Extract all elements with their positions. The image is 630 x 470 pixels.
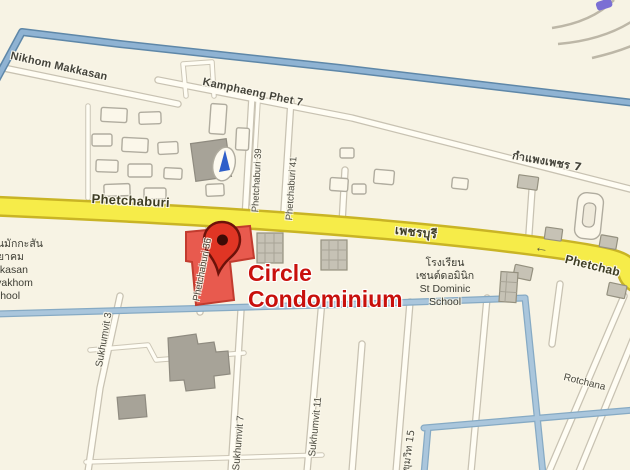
small-building: [117, 395, 147, 419]
place-label-line: โรงเรียนมักกะสัน: [0, 238, 54, 251]
place-label-line: Pittayakhom: [0, 277, 54, 290]
poi-label-line2: Condominium: [248, 286, 403, 312]
place-label-line: เซนต์ดอมินิก: [404, 270, 486, 283]
place-label-line: พิทยาคม: [0, 251, 54, 264]
large-building: [168, 334, 230, 391]
gridded-building: [499, 271, 518, 302]
place-label-line: School: [404, 296, 486, 309]
place-label-line: โรงเรียน: [404, 257, 486, 270]
place-label-st-dominic-school: โรงเรียน เซนต์ดอมินิก St Dominic School: [404, 257, 486, 309]
place-label-makkasan-school: โรงเรียนมักกะสัน พิทยาคม Makkasan Pittay…: [0, 238, 54, 303]
minor-curves: [552, 0, 630, 58]
place-label-line: St Dominic: [404, 283, 486, 296]
place-label-line: School: [0, 290, 54, 303]
poi-label-circle-condominium: Circle Condominium: [248, 260, 403, 312]
place-label-line: Makkasan: [0, 264, 54, 277]
ring-building: [574, 192, 605, 240]
gridded-building: [257, 233, 283, 263]
poi-label-line1: Circle: [248, 260, 403, 286]
map-canvas[interactable]: Nikhom Makkasan Kamphaeng Phet 7 กำแพงเพ…: [0, 0, 630, 470]
one-way-arrow-icon: ←: [533, 238, 549, 256]
